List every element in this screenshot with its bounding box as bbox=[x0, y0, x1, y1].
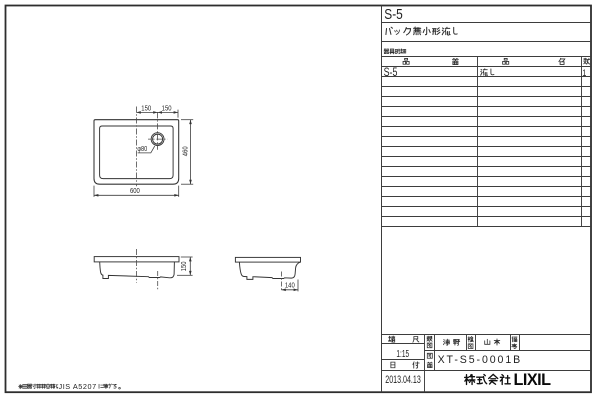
svg-text:1:15: 1:15 bbox=[396, 347, 409, 359]
svg-text:LIXIL: LIXIL bbox=[514, 371, 552, 389]
svg-text:600: 600 bbox=[130, 188, 140, 196]
svg-text:1: 1 bbox=[582, 67, 586, 78]
svg-text:150: 150 bbox=[141, 105, 151, 113]
svg-text:φ80: φ80 bbox=[137, 145, 147, 153]
svg-text:150: 150 bbox=[181, 261, 189, 271]
svg-text:140: 140 bbox=[285, 282, 295, 290]
svg-text:460: 460 bbox=[182, 146, 190, 156]
svg-text:S-5: S-5 bbox=[384, 6, 402, 22]
svg-text:S-5: S-5 bbox=[384, 66, 398, 80]
svg-text:150: 150 bbox=[162, 105, 172, 113]
svg-text:JIS A5207: JIS A5207 bbox=[59, 382, 97, 391]
svg-text:XT-S5-0001B: XT-S5-0001B bbox=[438, 354, 522, 366]
svg-text:2013.04.13: 2013.04.13 bbox=[385, 373, 420, 385]
